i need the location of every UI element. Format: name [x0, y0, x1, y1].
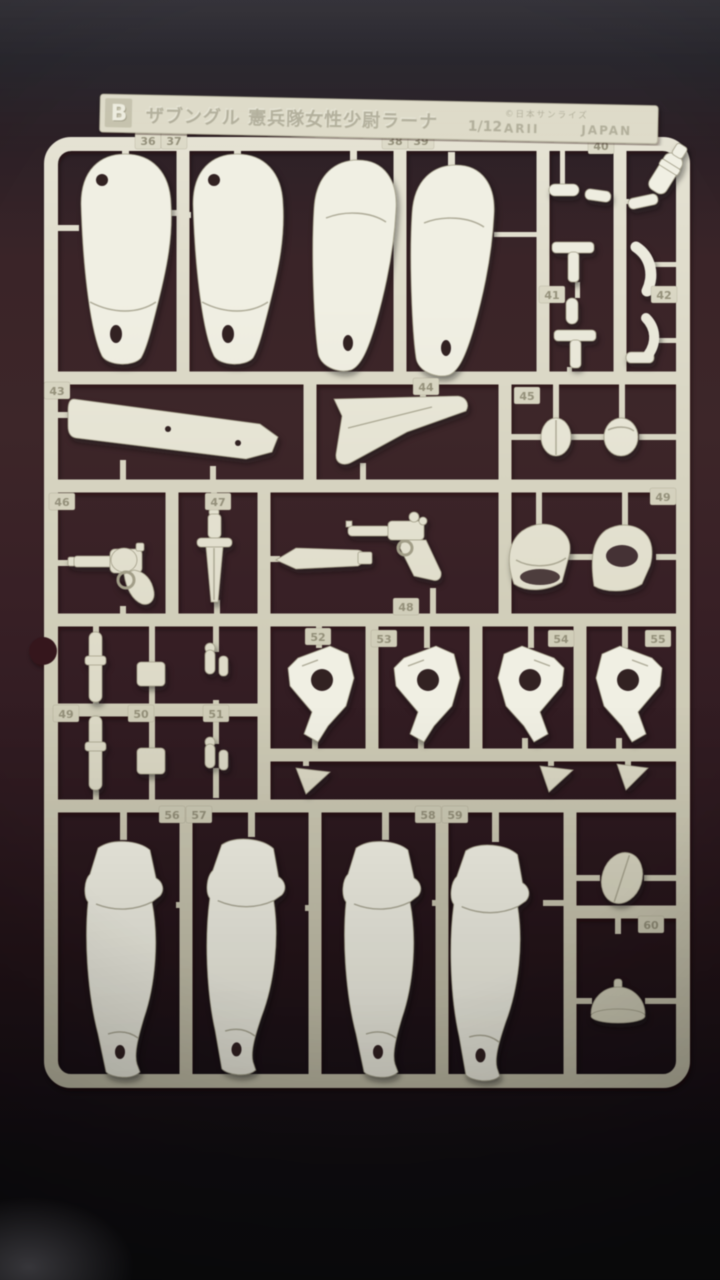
kit-copyright: ©日本サンライズ [505, 108, 589, 121]
svg-text:55: 55 [650, 633, 665, 646]
svg-text:36: 36 [140, 135, 156, 148]
svg-text:43: 43 [49, 385, 64, 398]
part-number-tag: 49 [650, 488, 676, 505]
part-number-tag: 54 [548, 630, 574, 647]
origin-name: JAPAN [580, 123, 632, 138]
svg-text:60: 60 [643, 919, 659, 932]
pistol-part-48 [346, 512, 441, 581]
svg-text:42: 42 [656, 289, 671, 302]
boot-armor-part-59 [444, 844, 530, 1082]
svg-text:41: 41 [544, 289, 559, 302]
shin-armor-part-38 [313, 160, 396, 371]
svg-text:47: 47 [210, 496, 225, 509]
kit-scale: 1/12 [468, 119, 503, 136]
part-number-tag: 56 [159, 806, 185, 823]
svg-text:37: 37 [166, 135, 181, 148]
part-number-tag: 46 [49, 493, 75, 510]
part-number-tag: 51 [203, 705, 229, 722]
frame-notch-cut [29, 637, 57, 665]
part-number-tag: 37 [161, 132, 187, 149]
boot-armor-part-57 [200, 838, 286, 1076]
t-shaped-part [552, 242, 594, 282]
rifle-board-part-43 [68, 399, 278, 459]
svg-text:49: 49 [655, 491, 670, 504]
part-number-tag: 55 [645, 630, 671, 647]
part-number-tag: 52 [305, 628, 331, 645]
dagger-part-47 [197, 507, 232, 602]
ankle-armor-part-54 [498, 646, 564, 742]
svg-text:53: 53 [376, 633, 391, 646]
svg-text:54: 54 [553, 633, 569, 646]
ankle-armor-part-52 [288, 646, 354, 742]
svg-text:58: 58 [420, 809, 435, 822]
part-number-tag: 57 [186, 806, 212, 823]
part-number-tag: 49 [53, 705, 79, 722]
thigh-armor-part-36 [81, 154, 171, 364]
svg-text:52: 52 [310, 631, 325, 644]
rod-part [85, 632, 106, 702]
dome-part-60 [591, 979, 645, 1023]
boot-armor-part-58 [343, 841, 421, 1077]
part-number-tag: 50 [128, 705, 154, 722]
svg-text:56: 56 [164, 809, 180, 822]
part-number-tag: 60 [638, 916, 664, 933]
shin-armor-part-39 [411, 165, 494, 376]
svg-text:59: 59 [447, 809, 462, 822]
svg-text:45: 45 [519, 390, 534, 403]
photo-model-kit-sprue: 3637383940414243444546474849495051525354… [0, 0, 720, 1280]
ankle-armor-part-55 [596, 646, 662, 742]
ankle-armor-part-53 [394, 646, 460, 742]
thigh-armor-part-37 [193, 154, 283, 364]
helmet-half-part-49 [509, 524, 570, 590]
t-shaped-part [554, 330, 596, 368]
part-number-tag: 36 [135, 132, 161, 149]
svg-text:48: 48 [398, 601, 413, 614]
runner-letter: B [110, 101, 127, 126]
part-number-tag: 58 [415, 806, 441, 823]
part-number-tag: 48 [393, 598, 419, 615]
wedge-part [296, 764, 648, 794]
part-number-tag: 42 [651, 286, 677, 303]
svg-text:50: 50 [133, 708, 149, 721]
revolver-part-46 [68, 543, 154, 604]
part-number-tag: 47 [205, 493, 231, 510]
part-number-tag: 59 [442, 806, 468, 823]
sword-blade-part [276, 548, 372, 569]
rod-part [85, 716, 106, 790]
part-number-tag: 41 [539, 286, 565, 303]
part-number-tag: 44 [413, 378, 439, 395]
sprue-runner: 3637383940414243444546474849495051525354… [0, 0, 720, 1280]
svg-text:51: 51 [208, 708, 223, 721]
svg-text:49: 49 [58, 708, 73, 721]
svg-text:44: 44 [418, 381, 434, 394]
svg-text:46: 46 [54, 496, 70, 509]
boot-armor-part-56 [85, 841, 163, 1077]
maker-name: ARII [504, 121, 540, 136]
svg-text:57: 57 [191, 809, 206, 822]
part-number-tag: 43 [44, 382, 70, 399]
part-number-tag: 45 [514, 387, 540, 404]
part-number-tag: 53 [371, 630, 397, 647]
helmet-half-part-49b [592, 525, 652, 591]
pod-part [595, 847, 649, 909]
jacket-part-44 [334, 396, 468, 464]
